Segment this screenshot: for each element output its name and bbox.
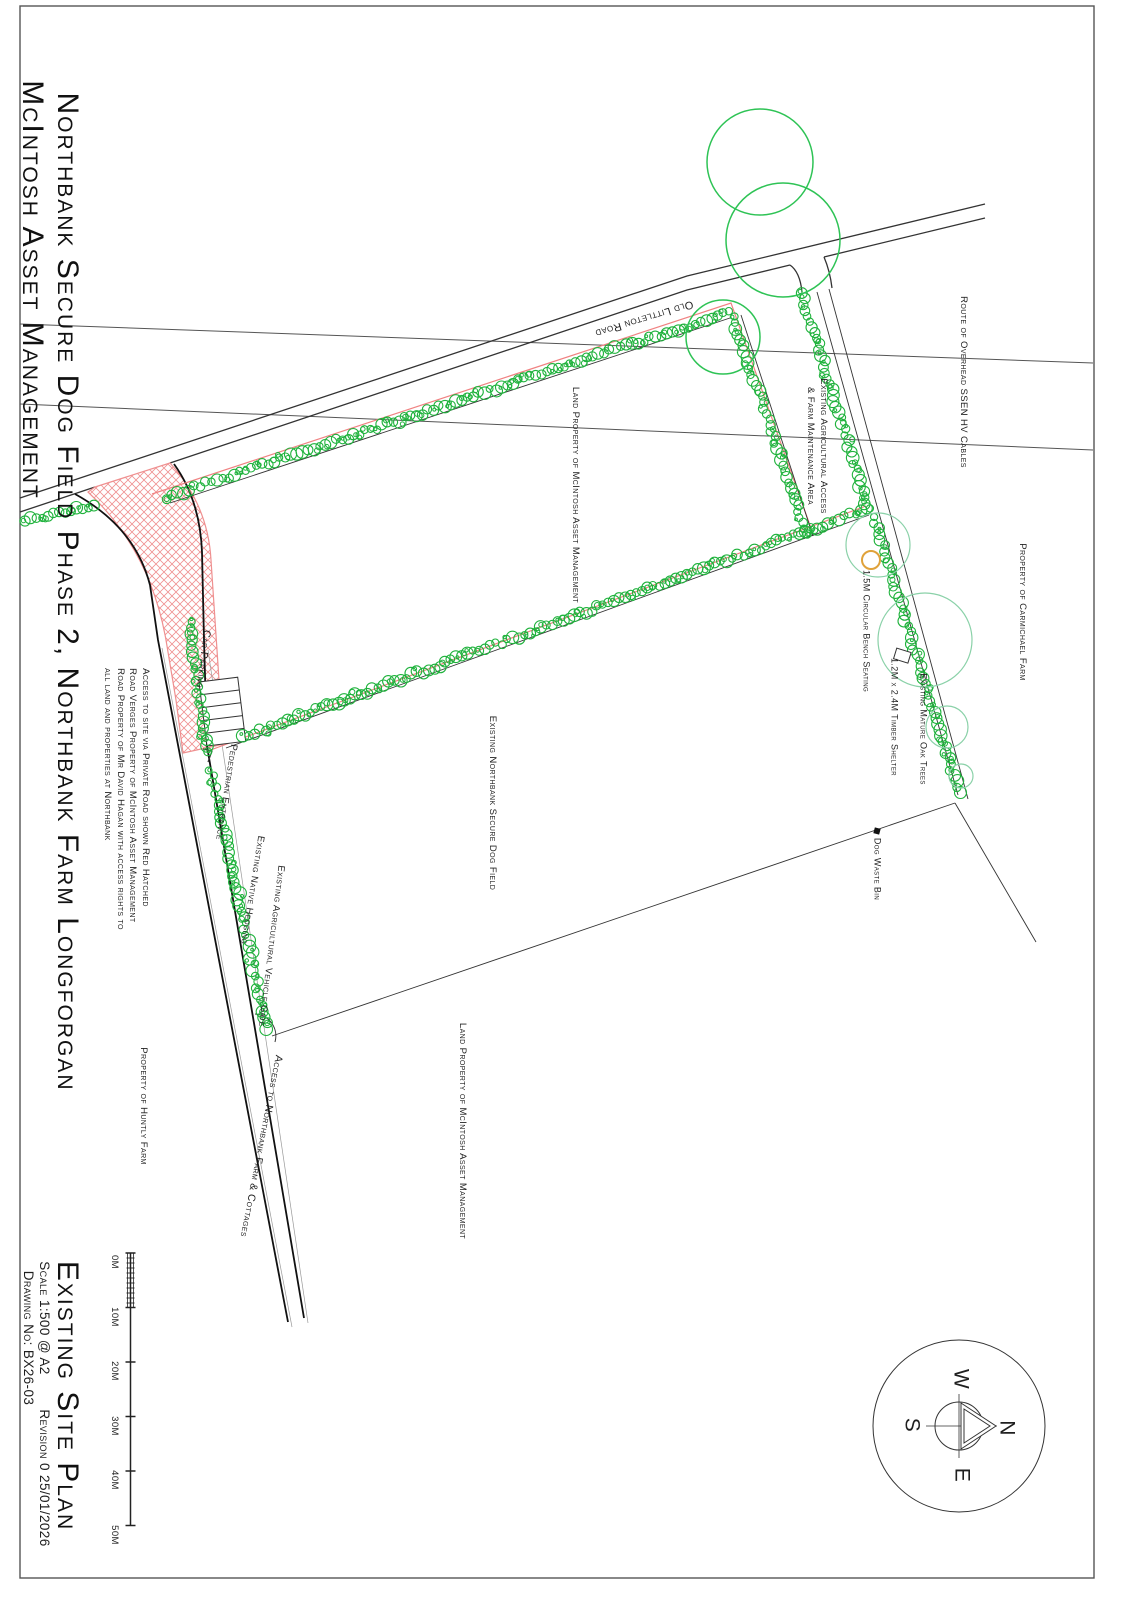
huntly-farm-label: Property of Huntly Farm xyxy=(138,1047,148,1165)
plan-title: Existing Site Plan xyxy=(52,1261,82,1531)
agri-access-line1: Existing Agricultural Access xyxy=(817,378,830,513)
access-note-line1: Access to site via Private Road shown Re… xyxy=(139,668,152,930)
agri-access-line2: & Farm Maintenance Area xyxy=(804,378,817,513)
scale-tick-50m: 50M xyxy=(109,1525,119,1545)
land-property-lower-label: Land Property of McIntosh Asset Manageme… xyxy=(457,1023,467,1239)
scale-tick-10m: 10M xyxy=(109,1307,119,1327)
compass-east: E xyxy=(952,1468,973,1482)
sheet-title: Northbank Secure Dog Field Phase 2, Nort… xyxy=(52,92,82,1091)
scale-tick-30m: 30M xyxy=(109,1416,119,1436)
land-property-upper-label: Land Property of McIntosh Asset Manageme… xyxy=(570,387,580,603)
oak-trees-label: Existing Mature Oak Trees xyxy=(919,673,928,785)
revision-text: Revision 0 25/01/2026 xyxy=(37,1409,51,1546)
site-plan-drawing xyxy=(0,0,1131,1600)
shelter-label: 1.2M x 2.4M Timber Shelter xyxy=(890,658,899,776)
compass-north: N xyxy=(997,1420,1018,1436)
agri-access-label: Existing Agricultural Access & Farm Main… xyxy=(804,378,830,513)
carmichael-farm-label: Property of Carmichael Farm xyxy=(1017,543,1027,681)
bench-seating-marker xyxy=(862,551,880,569)
hv-cable-lines xyxy=(20,324,1093,450)
company-name: McIntosh Asset Management xyxy=(17,80,47,500)
bench-label: 1.5M Circular Bench Seating xyxy=(862,570,871,692)
access-note-block: Access to site via Private Road shown Re… xyxy=(101,668,151,930)
dog-waste-bin-label: Dog Waste Bin xyxy=(873,838,882,900)
scale-tick-40m: 40M xyxy=(109,1470,119,1490)
access-note-line2: Road Verges Property of McIntosh Asset M… xyxy=(126,668,139,930)
sheet-border xyxy=(20,6,1094,1578)
scale-tick-20m: 20M xyxy=(109,1361,119,1381)
scale-tick-0m: 0M xyxy=(109,1255,119,1269)
compass-rose xyxy=(873,1340,1045,1512)
hv-cables-label: Route of Overhead SSEN HV Cables xyxy=(958,296,968,468)
compass-south: S xyxy=(902,1418,923,1432)
scale-text: Scale 1:500 @ A2 xyxy=(37,1261,51,1374)
site-plan-sheet: Northbank Secure Dog Field Phase 2, Nort… xyxy=(0,0,1131,1600)
drawing-number: Drawing No: BX26-03 xyxy=(21,1271,35,1406)
dog-field-label: Existing Northbank Secure Dog Field xyxy=(487,716,497,890)
compass-west: W xyxy=(951,1369,972,1389)
access-note-line4: all land and properties at Northbank xyxy=(101,668,114,930)
access-note-line3: Road Property of Mr David Hagan with acc… xyxy=(114,668,127,930)
scale-bar xyxy=(126,1253,136,1526)
